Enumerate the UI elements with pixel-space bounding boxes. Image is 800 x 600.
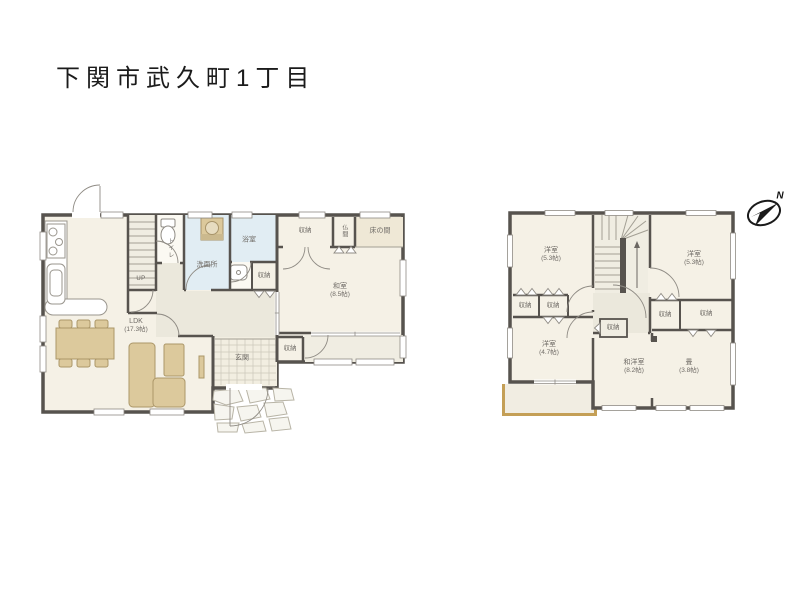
room-label-genkan: 玄関 — [235, 353, 249, 362]
closet-label-2f-hall: 収納 — [607, 324, 620, 332]
washing-machine-icon — [201, 218, 223, 240]
room-label-bedroom-nw: 洋室 (5.3帖) — [541, 246, 561, 264]
floorplan-drawing — [0, 0, 800, 600]
dining-table — [56, 320, 114, 367]
closet-label-2f-1: 収納 — [519, 302, 532, 310]
tv-icon — [199, 356, 204, 378]
structural-pillar — [651, 336, 657, 342]
back-door-gap — [72, 212, 100, 218]
room-label-tatami: 畳 (3.8帖) — [679, 358, 699, 376]
room-label-toilet: トイレ — [165, 238, 173, 259]
room-label-senmenjo: 洗面所 — [197, 260, 218, 269]
front-door-gap — [226, 384, 262, 390]
room-label-bedroom-sw: 洋室 (4.7帖) — [539, 340, 559, 358]
entrance-stone-path — [213, 388, 294, 433]
room-label-wayo: 和洋室 (8.2帖) — [624, 358, 645, 376]
compass-north-label: N — [776, 191, 783, 202]
floorplan-page: 下関市武久町1丁目 — [0, 0, 800, 600]
room-label-butsuma: 仏間 — [339, 224, 347, 238]
room-label-washitsu: 和室 (8.5帖) — [330, 282, 350, 300]
closet-label-2f-3: 収納 — [659, 311, 672, 319]
balcony-sliding-door — [534, 380, 576, 385]
kitchen-sink-icon — [47, 264, 65, 304]
stove-icon — [47, 224, 65, 258]
floor-plan-1f — [40, 185, 406, 433]
room-label-ldk: LDK (17.3帖) — [124, 317, 147, 335]
stair-spine-wall — [620, 238, 626, 293]
stairs-up-label: UP — [136, 276, 145, 284]
1f-hall-floor-a — [156, 263, 184, 291]
closet-label-1f-ne: 収納 — [299, 227, 312, 235]
closet-label-2f-4: 収納 — [700, 310, 713, 318]
closet-label-1f-hall: 収納 — [258, 272, 271, 280]
room-label-bedroom-ne: 洋室 (5.3帖) — [684, 250, 704, 268]
closet-label-1f-entry: 収納 — [284, 345, 297, 353]
closet-label-2f-2: 収納 — [547, 302, 560, 310]
1f-veranda-floor — [305, 335, 403, 362]
balcony-floor — [503, 384, 596, 415]
room-label-bathroom: 浴室 — [242, 235, 256, 244]
washbasin-icon — [230, 265, 247, 280]
room-label-tokonoma: 床の間 — [370, 226, 391, 235]
